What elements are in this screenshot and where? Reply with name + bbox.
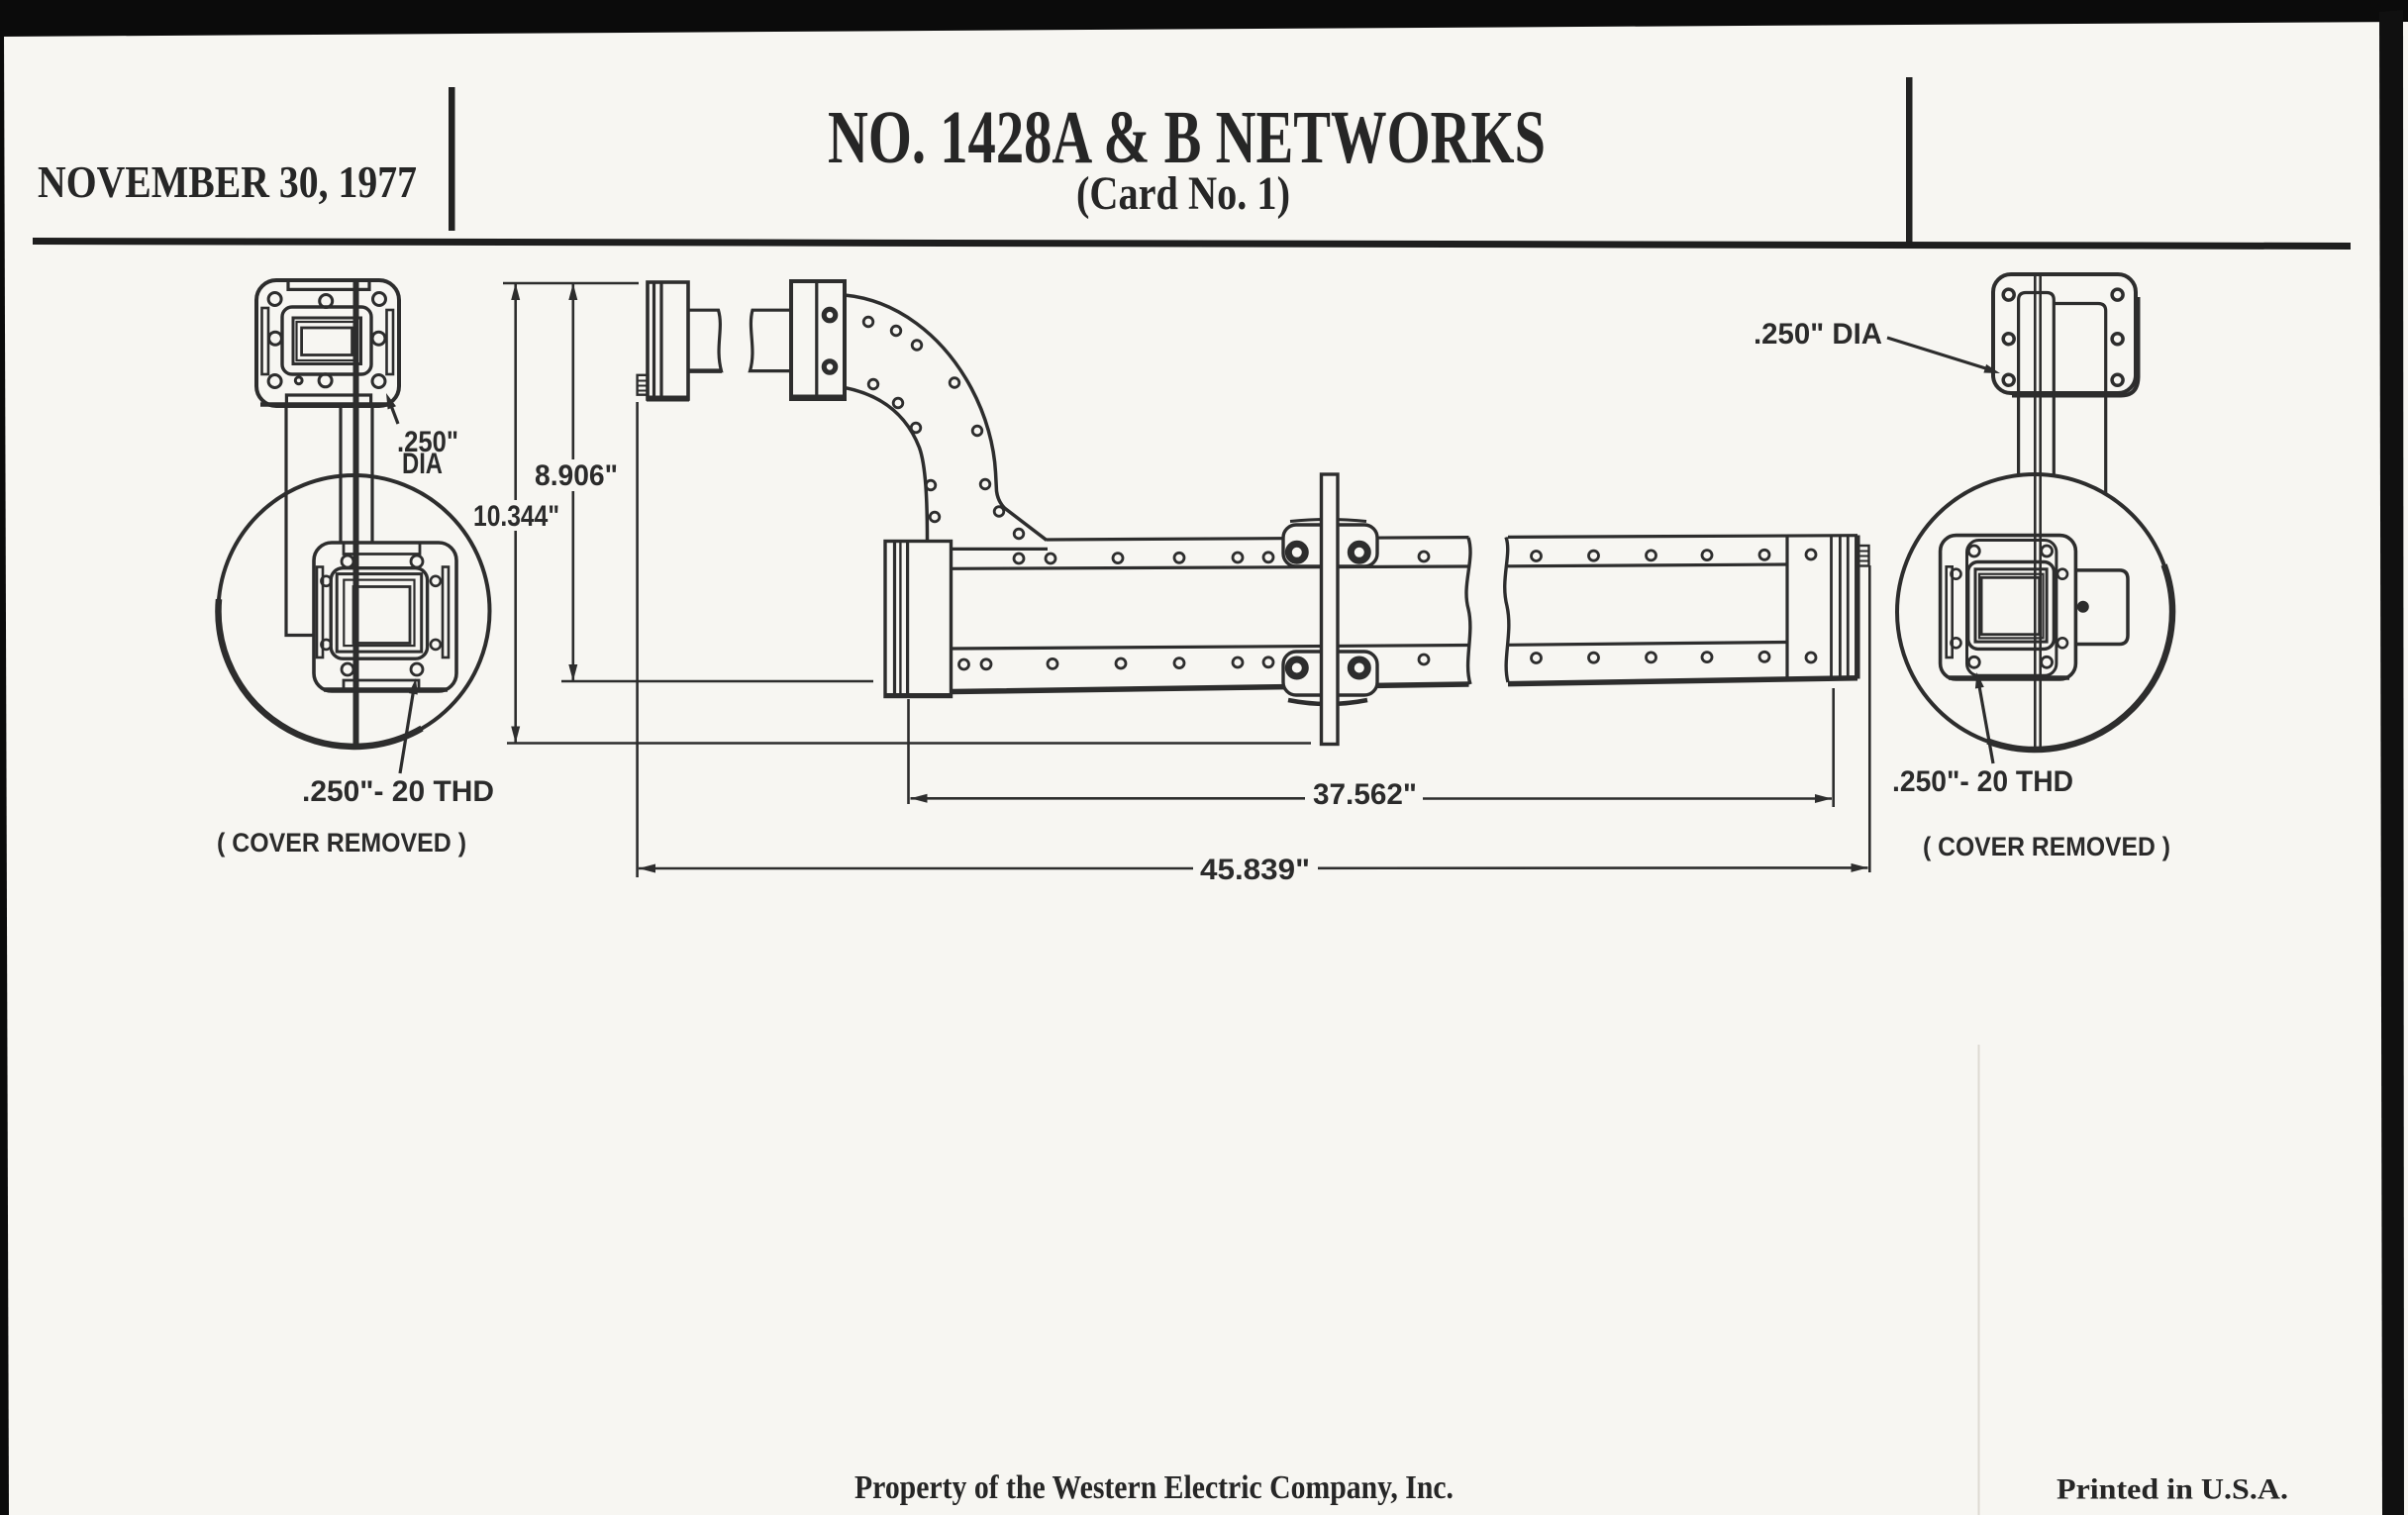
svg-text:.250" DIA: .250" DIA [1754,318,1882,351]
svg-text:8.906": 8.906" [535,459,618,492]
svg-text:.250"- 20 THD: .250"- 20 THD [302,775,494,808]
svg-text:45.839": 45.839" [1200,854,1310,886]
svg-text:37.562": 37.562" [1313,778,1417,811]
svg-text:Property of the Western Electr: Property of the Western Electric Company… [854,1469,1454,1506]
svg-text:10.344": 10.344" [473,500,559,533]
svg-text:NOVEMBER 30, 1977: NOVEMBER 30, 1977 [38,156,417,207]
svg-text:( COVER REMOVED ): ( COVER REMOVED ) [1923,832,2170,861]
svg-text:DIA: DIA [402,448,443,480]
svg-text:(Card No. 1): (Card No. 1) [1076,167,1290,220]
svg-text:Printed in U.S.A.: Printed in U.S.A. [2057,1473,2288,1506]
svg-text:.250"- 20 THD: .250"- 20 THD [1892,765,2073,798]
svg-text:( COVER REMOVED ): ( COVER REMOVED ) [217,828,466,858]
